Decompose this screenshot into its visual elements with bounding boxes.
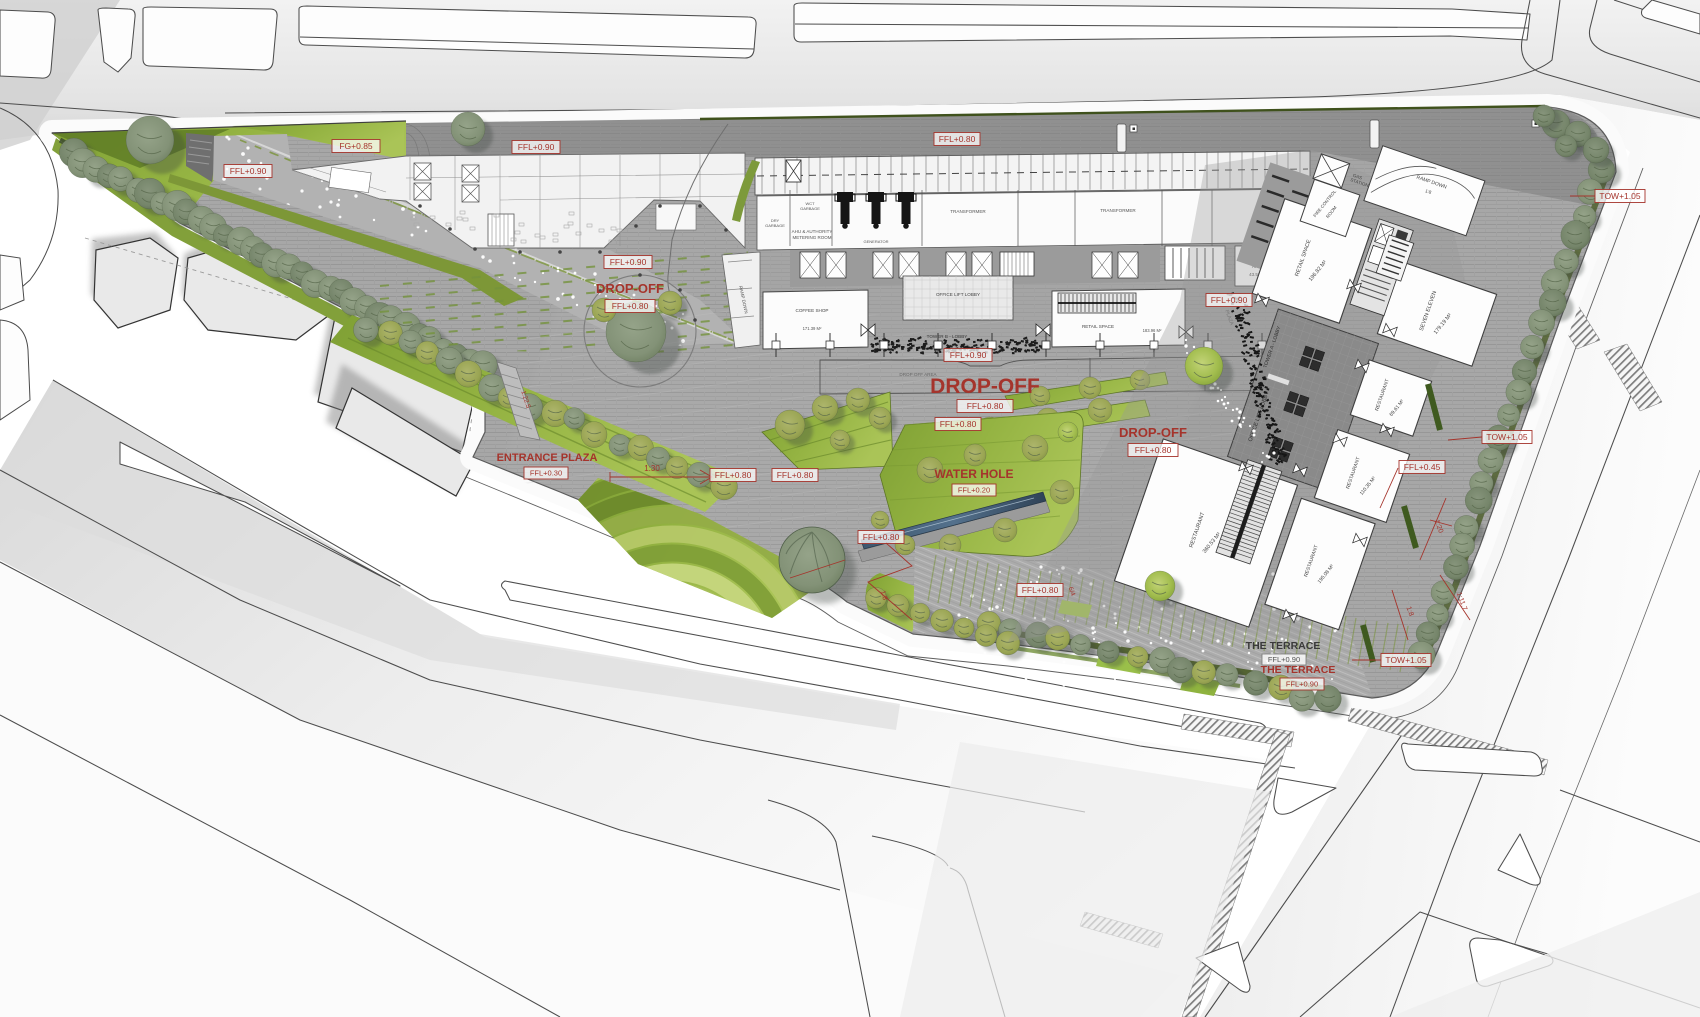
svg-text:FFL+0.45: FFL+0.45: [1404, 462, 1441, 472]
svg-text:171.39 M²: 171.39 M²: [803, 326, 822, 331]
svg-text:TOW+1.05: TOW+1.05: [1385, 655, 1426, 665]
svg-text:FFL+0.80: FFL+0.80: [1022, 585, 1059, 595]
svg-text:THE TERRACE: THE TERRACE: [1261, 664, 1336, 676]
svg-text:FFL+0.30: FFL+0.30: [530, 469, 562, 478]
svg-text:METERING ROOM: METERING ROOM: [793, 235, 832, 240]
svg-text:THE TERRACE: THE TERRACE: [1246, 640, 1321, 652]
svg-text:TOW+1.05: TOW+1.05: [1486, 432, 1527, 442]
svg-text:TOWER B - LOBBY: TOWER B - LOBBY: [927, 334, 968, 339]
svg-text:DROP-OFF: DROP-OFF: [596, 281, 664, 296]
svg-text:FFL+0.90: FFL+0.90: [1211, 295, 1248, 305]
svg-text:RETAIL SPACE: RETAIL SPACE: [1082, 324, 1114, 329]
svg-text:ENTRANCE PLAZA: ENTRANCE PLAZA: [497, 452, 598, 464]
svg-text:FFL+0.90: FFL+0.90: [230, 166, 267, 176]
svg-text:OFFICE LIFT LOBBY: OFFICE LIFT LOBBY: [936, 292, 980, 297]
svg-text:AHU & AUTHORITY: AHU & AUTHORITY: [792, 229, 833, 234]
svg-text:WATER HOLE: WATER HOLE: [934, 467, 1013, 481]
svg-text:COFFEE SHOP: COFFEE SHOP: [796, 308, 829, 313]
svg-text:FG+0.85: FG+0.85: [339, 141, 373, 151]
svg-text:FFL+0.90: FFL+0.90: [1268, 655, 1300, 664]
svg-text:FFL+0.90: FFL+0.90: [610, 257, 647, 267]
svg-text:FFL+0.80: FFL+0.80: [715, 470, 752, 480]
svg-text:FFL+0.80: FFL+0.80: [863, 532, 900, 542]
svg-text:FFL+0.80: FFL+0.80: [940, 419, 977, 429]
svg-text:1:30: 1:30: [644, 464, 660, 473]
svg-text:DROP-OFF: DROP-OFF: [930, 375, 1040, 398]
svg-text:TRANSFORMER: TRANSFORMER: [1100, 208, 1136, 213]
svg-text:FFL+0.80: FFL+0.80: [612, 301, 649, 311]
svg-text:DROP-OFF: DROP-OFF: [1119, 425, 1187, 440]
svg-text:FFL+0.80: FFL+0.80: [777, 470, 814, 480]
svg-text:TOW+1.05: TOW+1.05: [1599, 191, 1640, 201]
svg-text:FFL+0.90: FFL+0.90: [518, 142, 555, 152]
svg-text:GARBAGE: GARBAGE: [800, 206, 820, 211]
svg-text:183.96 M²: 183.96 M²: [1143, 328, 1162, 333]
svg-text:FFL+0.80: FFL+0.80: [967, 401, 1004, 411]
svg-text:FFL+0.20: FFL+0.20: [958, 486, 990, 495]
svg-text:FFL+0.80: FFL+0.80: [939, 134, 976, 144]
svg-text:FFL+0.90: FFL+0.90: [950, 350, 987, 360]
svg-text:TRANSFORMER: TRANSFORMER: [950, 209, 986, 214]
svg-text:FFL+0.80: FFL+0.80: [1135, 445, 1172, 455]
svg-text:GENERATOR: GENERATOR: [864, 239, 889, 244]
svg-text:GARBAGE: GARBAGE: [765, 223, 785, 228]
svg-text:FFL+0.90: FFL+0.90: [1286, 680, 1318, 689]
